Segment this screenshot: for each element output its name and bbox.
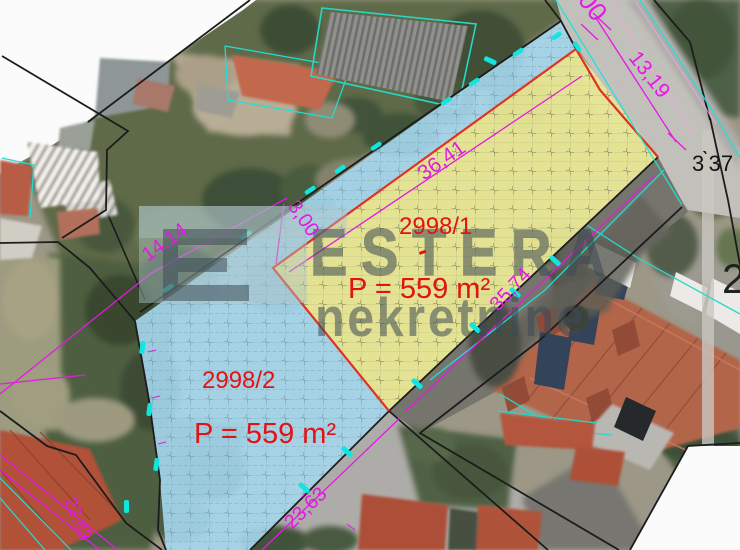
svg-text:2: 2 bbox=[722, 255, 740, 302]
svg-text:3 ̀37: 3 ̀37 bbox=[692, 151, 733, 176]
svg-text:2998/2: 2998/2 bbox=[202, 367, 275, 394]
svg-text:2998/1: 2998/1 bbox=[399, 213, 472, 240]
svg-text:P = 559 m²: P = 559 m² bbox=[348, 273, 490, 305]
svg-text:P = 559 m²: P = 559 m² bbox=[194, 418, 336, 450]
